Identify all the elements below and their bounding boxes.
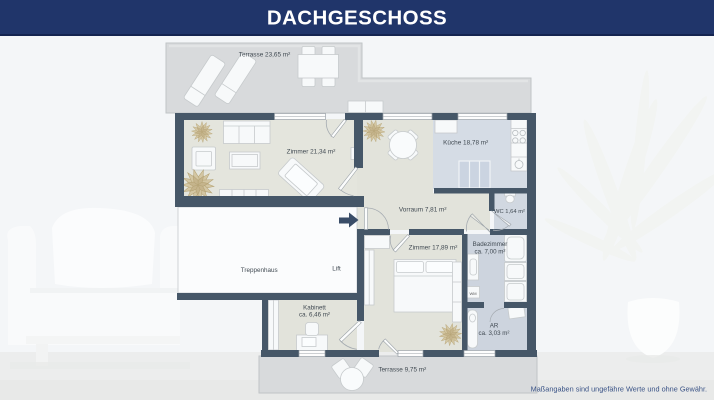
svg-text:AR: AR	[490, 323, 499, 330]
svg-text:WC 1,64 m²: WC 1,64 m²	[494, 209, 525, 215]
svg-text:Terrasse 23,65 m²: Terrasse 23,65 m²	[239, 52, 291, 59]
svg-text:Lift: Lift	[332, 266, 341, 273]
svg-text:Vorraum 7,81 m²: Vorraum 7,81 m²	[399, 207, 447, 214]
svg-text:ca. 3,03 m²: ca. 3,03 m²	[479, 330, 510, 337]
svg-text:ca. 6,46 m²: ca. 6,46 m²	[299, 312, 330, 319]
svg-text:Terrasse 9,75 m²: Terrasse 9,75 m²	[378, 366, 426, 373]
svg-text:Küche 18,78 m²: Küche 18,78 m²	[443, 140, 488, 147]
svg-text:Zimmer 17,89 m²: Zimmer 17,89 m²	[409, 245, 458, 252]
svg-text:Kabinett: Kabinett	[303, 304, 326, 311]
svg-text:DACHGESCHOSS: DACHGESCHOSS	[267, 7, 447, 30]
svg-text:Zimmer 21,34 m²: Zimmer 21,34 m²	[287, 148, 336, 155]
svg-text:Badezimmer: Badezimmer	[473, 241, 508, 248]
svg-text:ca. 7,00 m²: ca. 7,00 m²	[475, 249, 506, 256]
svg-text:Maßangaben sind ungefähre Wert: Maßangaben sind ungefähre Werte und ohne…	[531, 385, 707, 394]
svg-text:WM: WM	[469, 291, 476, 296]
svg-text:Treppenhaus: Treppenhaus	[241, 267, 278, 274]
